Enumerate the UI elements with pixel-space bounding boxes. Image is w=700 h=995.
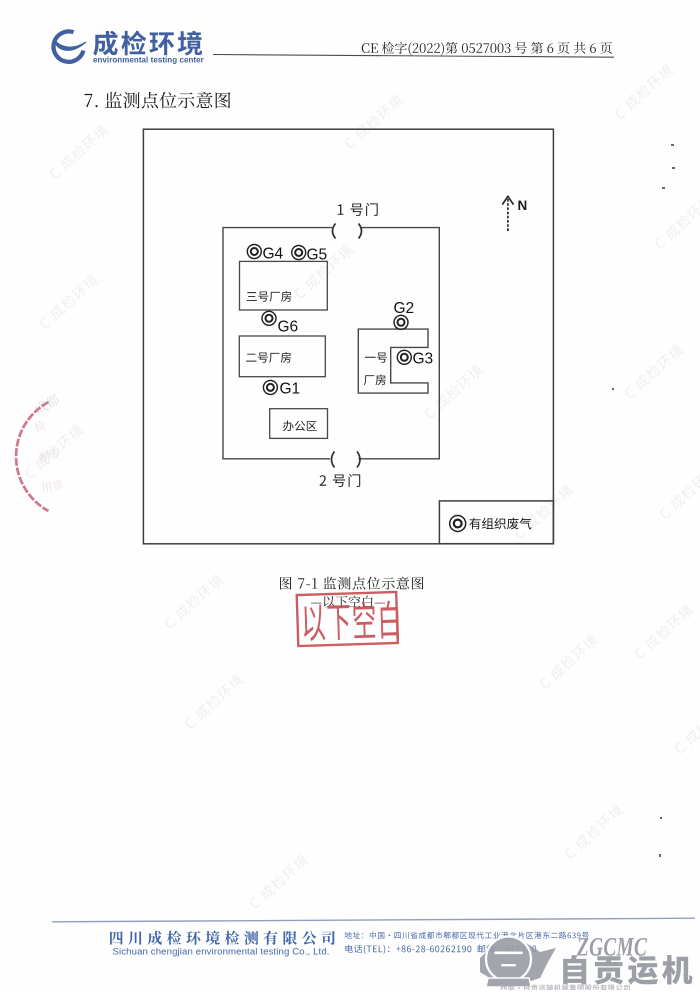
svg-text:G6: G6 bbox=[278, 319, 299, 336]
svg-text:N: N bbox=[518, 198, 528, 213]
svg-text:Sichuan chengjian environmenta: Sichuan chengjian environmental testing … bbox=[113, 947, 330, 958]
svg-text:environmental testing center: environmental testing center bbox=[93, 56, 204, 65]
svg-text:G4: G4 bbox=[263, 246, 284, 263]
svg-text:G3: G3 bbox=[413, 351, 434, 368]
svg-text:G5: G5 bbox=[307, 247, 328, 264]
svg-text:G2: G2 bbox=[394, 300, 415, 317]
svg-text:G1: G1 bbox=[280, 381, 301, 398]
